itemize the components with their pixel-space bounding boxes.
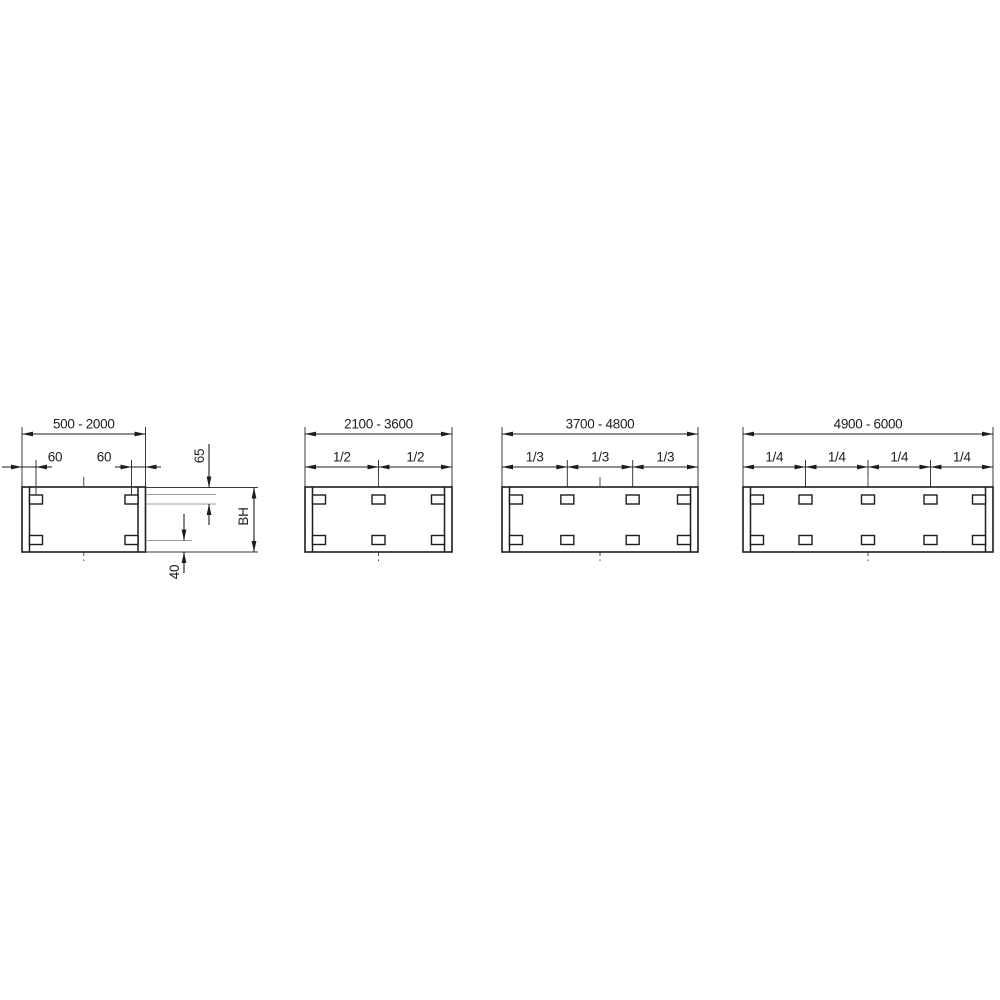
dimension-arrow: [22, 432, 33, 437]
division-dimension-label: 1/3: [656, 450, 674, 465]
technical-drawing: 500 - 20002100 - 36001/21/23700 - 48001/…: [0, 0, 1000, 1000]
dimension-arrow: [556, 465, 567, 470]
dimension-arrow: [868, 465, 879, 470]
mounting-slot: [924, 495, 937, 504]
panel-diagram-2: 2100 - 36001/21/2: [305, 417, 452, 562]
dimension-arrow: [305, 465, 316, 470]
dimension-arrow: [502, 432, 513, 437]
panel-diagram-3: 3700 - 48001/31/31/3: [502, 417, 698, 562]
dimension-arrow: [146, 465, 157, 470]
dimension-arrow: [633, 465, 644, 470]
range-dimension: 3700 - 4800: [502, 417, 698, 437]
right-offset-label: 60: [97, 450, 111, 465]
dimension-arrow: [567, 465, 578, 470]
mounting-slot: [313, 536, 326, 545]
bottom-offset-label: 40: [167, 565, 182, 579]
mounting-slot: [125, 495, 138, 504]
range-dimension: 500 - 2000: [22, 417, 146, 437]
range-dimension-label: 500 - 2000: [53, 417, 115, 432]
dimension-arrow: [502, 465, 513, 470]
range-dimension-label: 2100 - 3600: [344, 417, 413, 432]
mounting-slot: [751, 536, 764, 545]
panel-outline: [502, 487, 698, 552]
mounting-slot: [372, 536, 385, 545]
dimension-arrow: [368, 465, 379, 470]
dimension-arrow: [931, 465, 942, 470]
dimension-arrow: [379, 465, 390, 470]
panel-diagram-1: 500 - 2000: [22, 417, 146, 562]
mounting-slot: [372, 495, 385, 504]
dimension-arrow: [252, 541, 257, 552]
mounting-slot: [862, 495, 875, 504]
mounting-slot: [973, 536, 986, 545]
dimension-arrow: [687, 432, 698, 437]
division-dimension-label: 1/3: [591, 450, 609, 465]
mounting-slot: [125, 536, 138, 545]
range-dimension: 4900 - 6000: [743, 417, 993, 437]
mounting-slot: [862, 536, 875, 545]
division-dimension-label: 1/4: [890, 450, 909, 465]
mounting-slot: [973, 495, 986, 504]
mounting-slot: [626, 495, 639, 504]
dimension-arrow: [743, 432, 754, 437]
mounting-slot: [678, 495, 691, 504]
dimension-arrow: [920, 465, 931, 470]
division-dimension-label: 1/4: [828, 450, 847, 465]
dimension-arrow: [207, 477, 212, 488]
mounting-slot: [924, 536, 937, 545]
range-dimension: 2100 - 3600: [305, 417, 452, 437]
top-offset-label: 65: [192, 449, 207, 463]
division-dimension-label: 1/2: [406, 450, 424, 465]
dimension-arrow: [182, 530, 187, 541]
dimension-arrow: [182, 552, 187, 563]
dimension-arrow: [135, 432, 146, 437]
panel-diagram-4: 4900 - 60001/41/41/41/4: [743, 417, 993, 562]
drawing-canvas: 500 - 20002100 - 36001/21/23700 - 48001/…: [0, 0, 1000, 1000]
mounting-slot: [30, 495, 43, 504]
dimension-arrow: [687, 465, 698, 470]
mounting-slot: [313, 495, 326, 504]
mounting-slot: [751, 495, 764, 504]
mounting-slot: [561, 495, 574, 504]
range-dimension-label: 3700 - 4800: [566, 417, 635, 432]
left-offset-label: 60: [48, 450, 62, 465]
dimension-arrow: [743, 465, 754, 470]
dimension-arrow: [121, 465, 132, 470]
range-dimension-label: 4900 - 6000: [834, 417, 903, 432]
dimension-arrow: [11, 465, 22, 470]
dimension-arrow: [441, 432, 452, 437]
dimension-arrow: [622, 465, 633, 470]
dimension-arrow: [207, 504, 212, 515]
division-dimension-label: 1/4: [765, 450, 784, 465]
dimension-arrow: [305, 432, 316, 437]
dimension-arrow: [982, 465, 993, 470]
mounting-slot: [799, 495, 812, 504]
mounting-slot: [561, 536, 574, 545]
mounting-slot: [678, 536, 691, 545]
mounting-slot: [432, 495, 445, 504]
dimension-arrow: [252, 488, 257, 499]
dimension-arrow: [795, 465, 806, 470]
dimension-arrow: [982, 432, 993, 437]
dimension-arrow: [806, 465, 817, 470]
mounting-slot: [510, 536, 523, 545]
height-label: BH: [236, 507, 251, 525]
dimension-arrow: [36, 465, 47, 470]
division-dimension-label: 1/3: [526, 450, 544, 465]
mounting-slot: [626, 536, 639, 545]
mounting-slot: [799, 536, 812, 545]
dimension-arrow: [441, 465, 452, 470]
dimension-arrow: [857, 465, 868, 470]
mounting-slot: [510, 495, 523, 504]
division-dimension-label: 1/2: [333, 450, 351, 465]
mounting-slot: [30, 536, 43, 545]
division-dimension-label: 1/4: [953, 450, 972, 465]
mounting-slot: [432, 536, 445, 545]
